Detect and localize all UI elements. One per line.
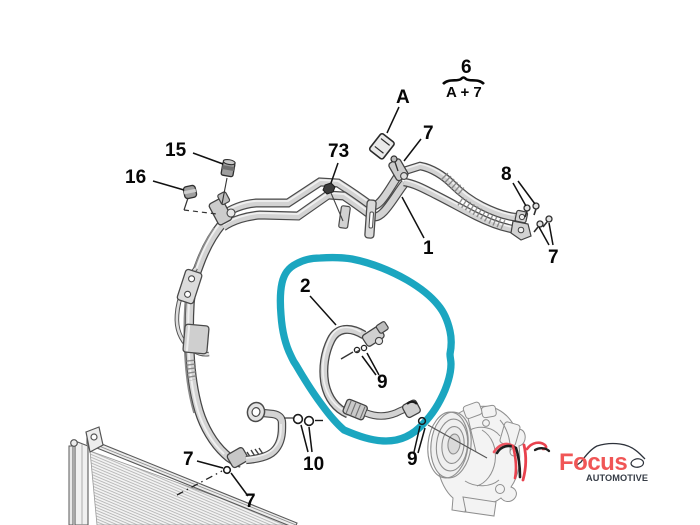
svg-text:73: 73 bbox=[328, 141, 349, 162]
svg-text:9: 9 bbox=[407, 449, 418, 470]
svg-text:7: 7 bbox=[423, 123, 434, 144]
svg-text:Focus: Focus bbox=[559, 449, 627, 476]
svg-text:A + 7: A + 7 bbox=[446, 84, 482, 101]
svg-text:AUTOMOTIVE: AUTOMOTIVE bbox=[586, 473, 648, 483]
svg-text:7: 7 bbox=[183, 449, 194, 470]
svg-text:16: 16 bbox=[125, 167, 146, 188]
svg-text:1: 1 bbox=[423, 238, 434, 259]
svg-text:8: 8 bbox=[501, 164, 512, 185]
svg-text:2: 2 bbox=[300, 276, 311, 297]
svg-text:A: A bbox=[396, 87, 410, 108]
svg-text:15: 15 bbox=[165, 140, 187, 161]
svg-text:10: 10 bbox=[303, 454, 324, 475]
svg-text:7: 7 bbox=[548, 247, 559, 268]
svg-text:6: 6 bbox=[461, 57, 472, 78]
